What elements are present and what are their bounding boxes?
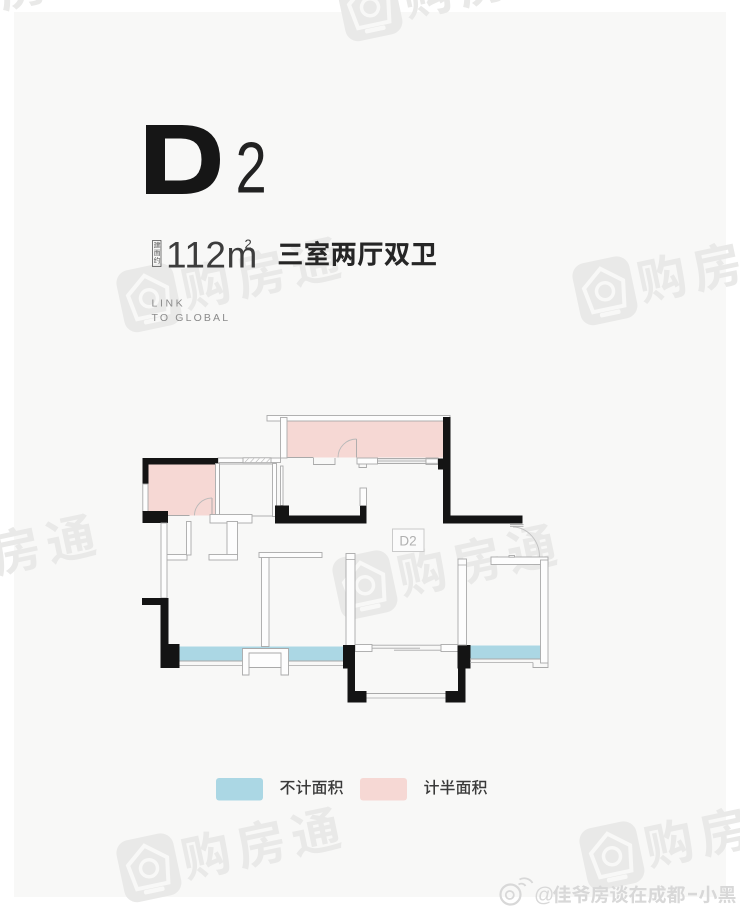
svg-text:2: 2 — [245, 237, 252, 252]
svg-text:TO GLOBAL: TO GLOBAL — [152, 312, 231, 324]
svg-text:2: 2 — [236, 128, 267, 208]
svg-text:@: @ — [534, 885, 554, 907]
svg-text:LINK: LINK — [152, 298, 186, 310]
svg-text:D2: D2 — [399, 534, 416, 549]
